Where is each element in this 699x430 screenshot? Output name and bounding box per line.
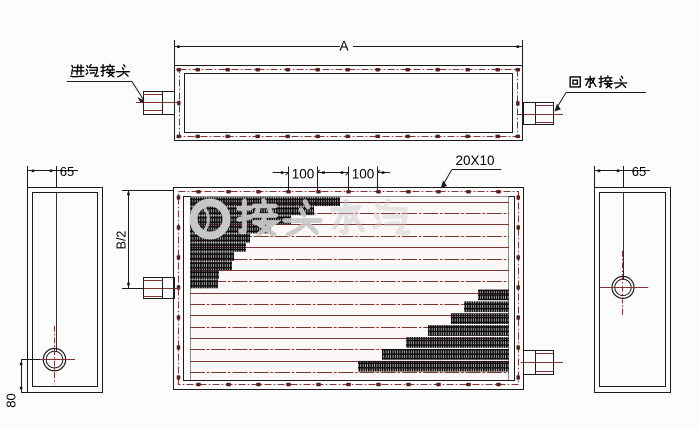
svg-text:80: 80: [4, 393, 19, 407]
svg-text:65: 65: [60, 164, 74, 179]
svg-text:B/2: B/2: [115, 231, 129, 250]
svg-text:65: 65: [632, 164, 646, 179]
svg-text:20X10: 20X10: [455, 153, 494, 168]
svg-text:A: A: [339, 39, 348, 54]
svg-text:100: 100: [292, 167, 315, 182]
svg-text:100: 100: [352, 167, 375, 182]
